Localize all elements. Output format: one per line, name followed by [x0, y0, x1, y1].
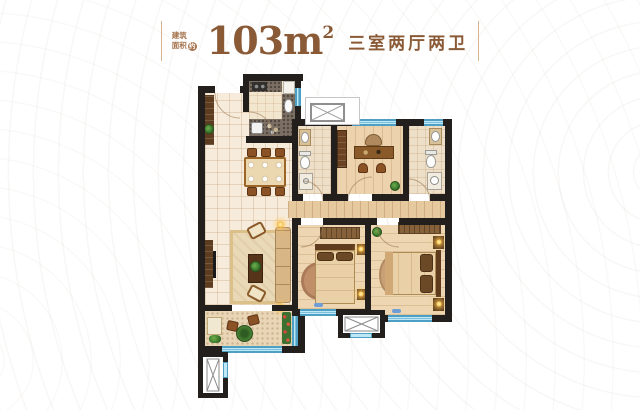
wall — [323, 218, 377, 225]
wall — [282, 346, 298, 353]
area-label-line2: 面积 — [172, 41, 187, 50]
window — [424, 119, 443, 126]
wall — [243, 74, 249, 112]
window — [295, 88, 301, 106]
window — [300, 309, 336, 316]
floorplan-page: 建筑 面积约 103m2 三室两厅两卫 — [0, 0, 640, 410]
duct-shaft-interior — [343, 315, 380, 333]
window — [350, 333, 372, 338]
wall — [365, 225, 371, 322]
wall — [246, 136, 292, 143]
elevator-shaft — [310, 103, 345, 122]
area-label: 建筑 面积约 — [172, 31, 197, 51]
wall — [298, 316, 305, 353]
header-divider-left — [161, 21, 162, 61]
duct-shaft-interior — [203, 357, 223, 393]
wall — [432, 315, 452, 322]
area-exponent: 2 — [322, 23, 334, 43]
bedroom2-door-arc — [301, 225, 323, 247]
wall — [198, 86, 205, 352]
elevator-shaft-x-icon — [312, 105, 343, 120]
header: 建筑 面积约 103m2 三室两厅两卫 — [0, 16, 640, 66]
layout-description: 三室两厅两卫 — [348, 29, 468, 54]
wall — [331, 126, 337, 201]
master-door-arc — [377, 225, 399, 247]
floor-plan — [196, 72, 454, 402]
kitchen-door-arc — [249, 112, 273, 136]
wall — [243, 74, 303, 81]
header-divider-right — [478, 21, 479, 61]
wall — [198, 305, 232, 311]
wall — [396, 119, 424, 126]
window — [222, 346, 282, 353]
approx-badge: 约 — [188, 42, 197, 51]
wall — [295, 75, 301, 88]
window — [292, 316, 298, 346]
wall — [292, 218, 301, 225]
area-value: 103m2 — [207, 22, 334, 60]
wall — [292, 119, 298, 194]
duct-shaft-x-icon — [203, 357, 223, 393]
wall — [292, 194, 303, 201]
wall — [430, 194, 452, 201]
entry-door-arc — [215, 93, 240, 118]
wall — [403, 126, 409, 201]
area-label-line1: 建筑 — [172, 31, 187, 40]
wall — [292, 225, 298, 311]
bathroom1-door-arc — [303, 181, 323, 201]
wall — [323, 194, 348, 201]
window — [223, 362, 228, 378]
bathroom2-door-arc — [408, 179, 430, 201]
window — [388, 315, 432, 322]
study-door-arc — [348, 177, 372, 201]
wall — [399, 218, 452, 225]
duct-shaft-x-icon — [343, 315, 380, 333]
wall — [372, 194, 408, 201]
